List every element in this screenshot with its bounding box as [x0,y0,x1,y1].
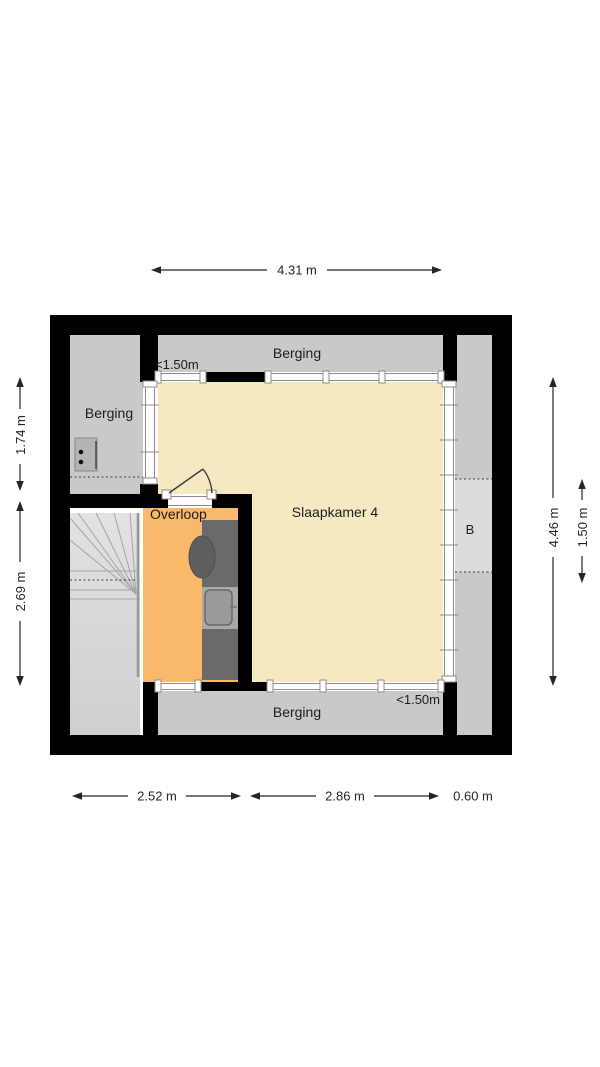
dim-bottom-left: 2.52 m [72,789,241,804]
label-berging-bottom: Berging [273,704,321,720]
dim-right-inner: 1.50 m [575,479,590,583]
label-headroom-top: <1.50m [155,357,199,372]
label-zone-b: B [466,522,475,537]
sink-icon [205,590,232,625]
dim-bottom-right-label: 0.60 m [453,789,493,804]
floor-plan: Berging Berging <1.50m Slaapkamer 4 Over… [0,0,600,1067]
label-overloop: Overloop [150,506,207,522]
dim-top: 4.31 m [151,263,442,278]
dim-bottom-left-label: 2.52 m [137,789,177,804]
dim-right-inner-label: 1.50 m [575,508,590,548]
floor-plan-page: Berging Berging <1.50m Slaapkamer 4 Over… [0,0,600,1067]
dim-bottom-middle: 2.86 m [250,789,439,804]
dim-top-label: 4.31 m [277,263,317,278]
label-headroom-bottom: <1.50m [396,692,440,707]
dim-right-outer-label: 4.46 m [546,508,561,548]
staircase-area [70,513,140,735]
dim-left-upper-label: 1.74 m [13,415,28,455]
dim-left-upper: 1.74 m [13,377,28,491]
dim-bottom-middle-label: 2.86 m [325,789,365,804]
dim-right-outer: 4.46 m [546,377,561,686]
meter-cabinet-icon [75,438,97,471]
window-top [155,371,444,383]
boiler-icon [189,536,215,578]
label-berging-top: Berging [273,345,321,361]
dim-left-lower-label: 2.69 m [13,572,28,612]
label-berging-left: Berging [85,405,133,421]
dim-left-lower: 2.69 m [13,501,28,686]
label-slaapkamer-4: Slaapkamer 4 [292,504,379,520]
